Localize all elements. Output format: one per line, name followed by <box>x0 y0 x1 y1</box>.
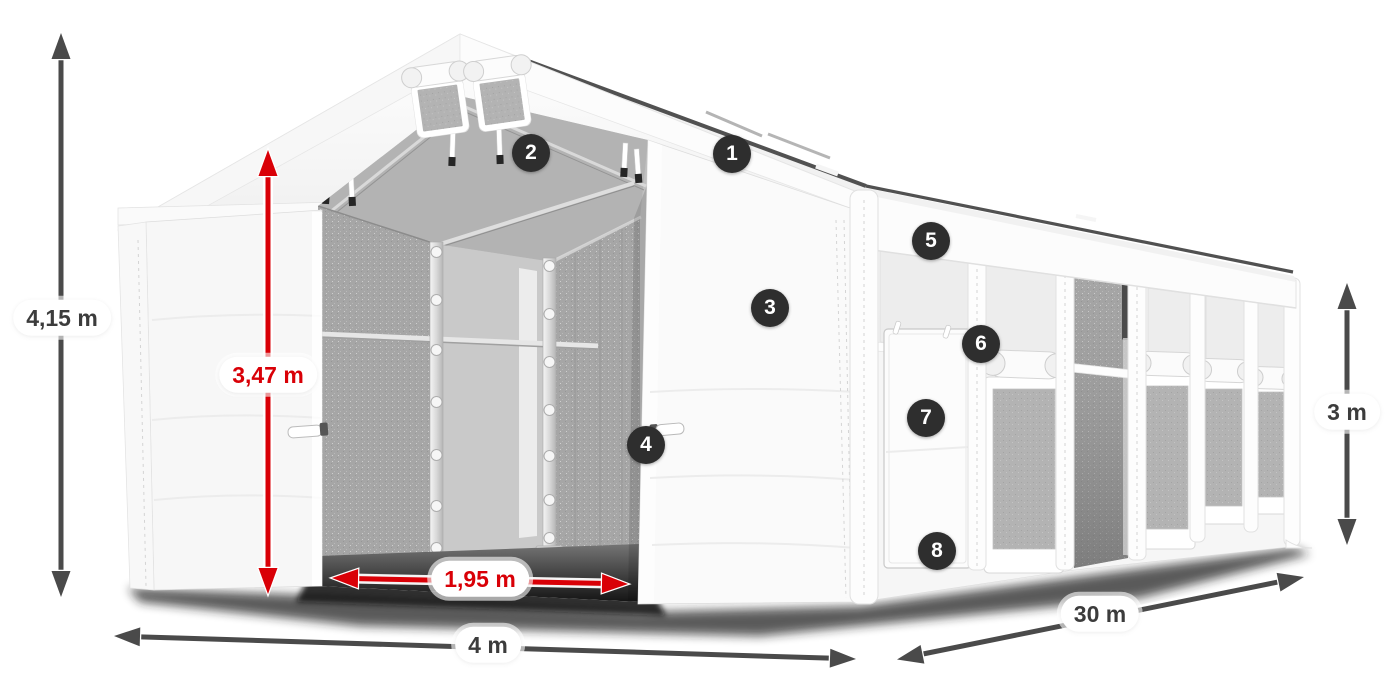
front-right-door-panel <box>638 140 856 604</box>
front-left-door-panel <box>146 210 328 590</box>
length-label: 30 m <box>1061 596 1139 632</box>
inner-height-label: 3,47 m <box>219 357 317 393</box>
feature-marker-3[interactable]: 3 <box>751 289 789 327</box>
side-height-label: 3 m <box>1314 394 1380 430</box>
tent-illustration <box>0 0 1400 700</box>
side-door-panel <box>884 321 971 568</box>
width-label: 4 m <box>455 627 521 663</box>
feature-marker-7[interactable]: 7 <box>907 399 945 437</box>
feature-marker-4[interactable]: 4 <box>627 426 665 464</box>
inner-door-panel <box>553 218 640 552</box>
feature-marker-8[interactable]: 8 <box>918 532 956 570</box>
feature-marker-5[interactable]: 5 <box>912 222 950 260</box>
feature-marker-2[interactable]: 2 <box>512 134 550 172</box>
entrance-width-label: 1,95 m <box>431 561 529 597</box>
total-height-label: 4,15 m <box>13 300 111 336</box>
tent-dimension-diagram: 4,15 m 3,47 m 1,95 m 4 m 30 m 3 m 1 2 3 … <box>0 0 1400 700</box>
feature-marker-1[interactable]: 1 <box>713 135 751 173</box>
feature-marker-6[interactable]: 6 <box>962 325 1000 363</box>
